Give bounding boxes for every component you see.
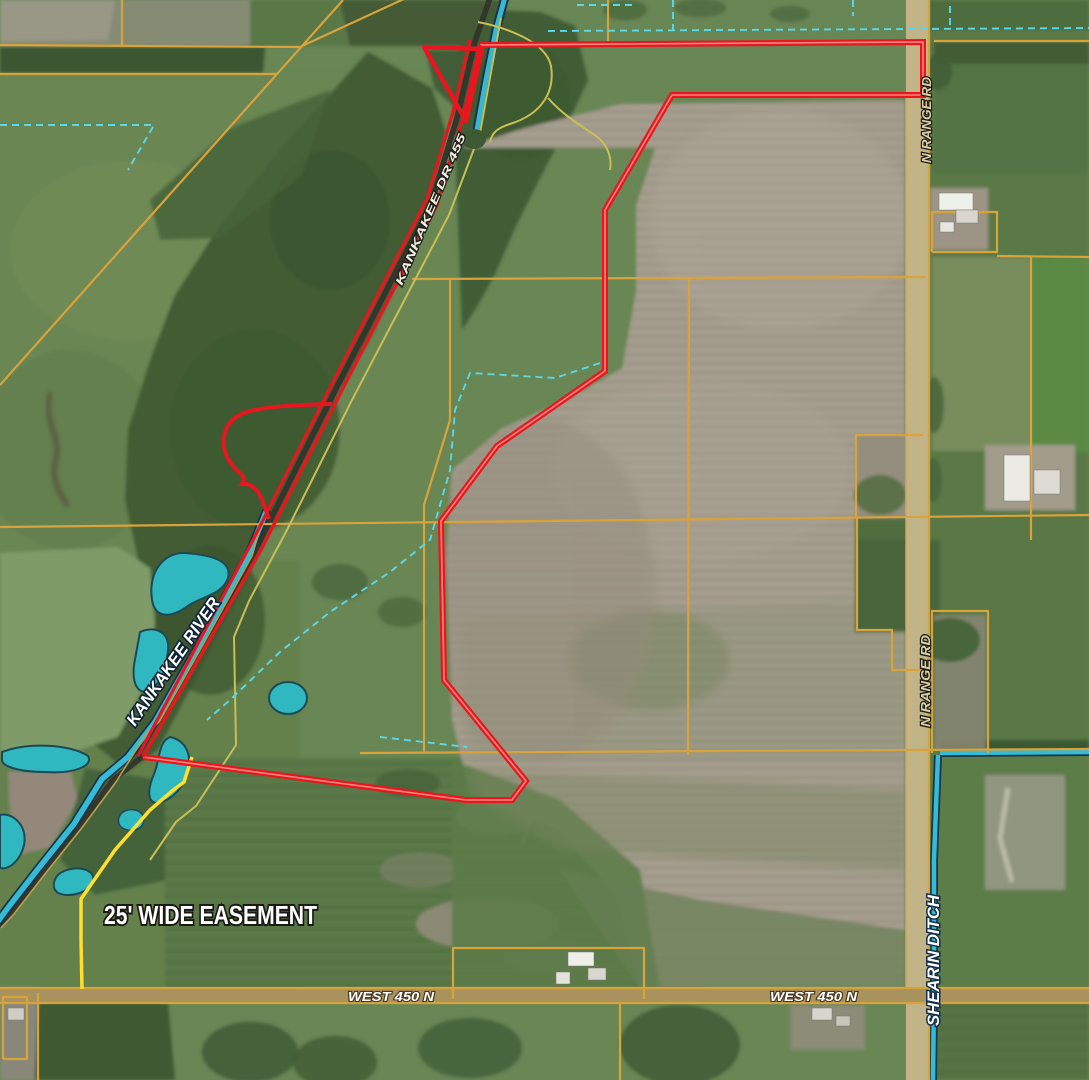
svg-text:WEST 450 N: WEST 450 N: [770, 989, 858, 1004]
svg-text:N RANGE RD: N RANGE RD: [919, 635, 933, 727]
svg-text:WEST 450 N: WEST 450 N: [348, 989, 435, 1004]
svg-text:SHEARIN DITCH: SHEARIN DITCH: [924, 894, 943, 1026]
svg-text:N RANGE RD: N RANGE RD: [920, 77, 934, 163]
svg-text:25' WIDE EASEMENT: 25' WIDE EASEMENT: [104, 900, 317, 930]
